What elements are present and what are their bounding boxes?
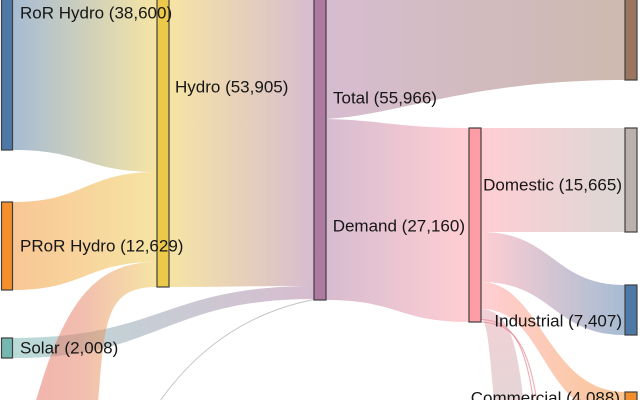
node-industrial — [625, 285, 637, 335]
node-solar — [2, 338, 13, 358]
sankey-svg: RoR Hydro (38,600) Hydro (53,905) PRoR H… — [0, 0, 640, 400]
node-ror-hydro — [2, 0, 13, 150]
sankey-diagram: RoR Hydro (38,600) Hydro (53,905) PRoR H… — [0, 0, 640, 400]
node-commercial — [625, 392, 637, 400]
label-industrial: Industrial (7,407) — [494, 311, 622, 330]
label-domestic: Domestic (15,665) — [483, 175, 622, 194]
flow-ror-hydro-to-hydro — [13, 0, 157, 172]
label-demand: Demand (27,160) — [333, 216, 465, 235]
flow-hydro-to-total — [169, 0, 314, 287]
label-commercial: Commercial (4,088) — [471, 388, 620, 400]
node-domestic — [625, 128, 637, 232]
node-pror-hydro — [2, 202, 13, 290]
label-solar: Solar (2,008) — [20, 338, 118, 357]
node-exports — [625, 0, 637, 80]
label-total: Total (55,966) — [333, 88, 437, 107]
label-hydro: Hydro (53,905) — [175, 77, 288, 96]
node-demand — [469, 128, 481, 322]
flow-offscreen-to-total-hairline — [118, 300, 314, 400]
node-total — [314, 0, 326, 300]
label-ror-hydro: RoR Hydro (38,600) — [20, 3, 172, 22]
label-pror-hydro: PRoR Hydro (12,629) — [20, 236, 183, 255]
